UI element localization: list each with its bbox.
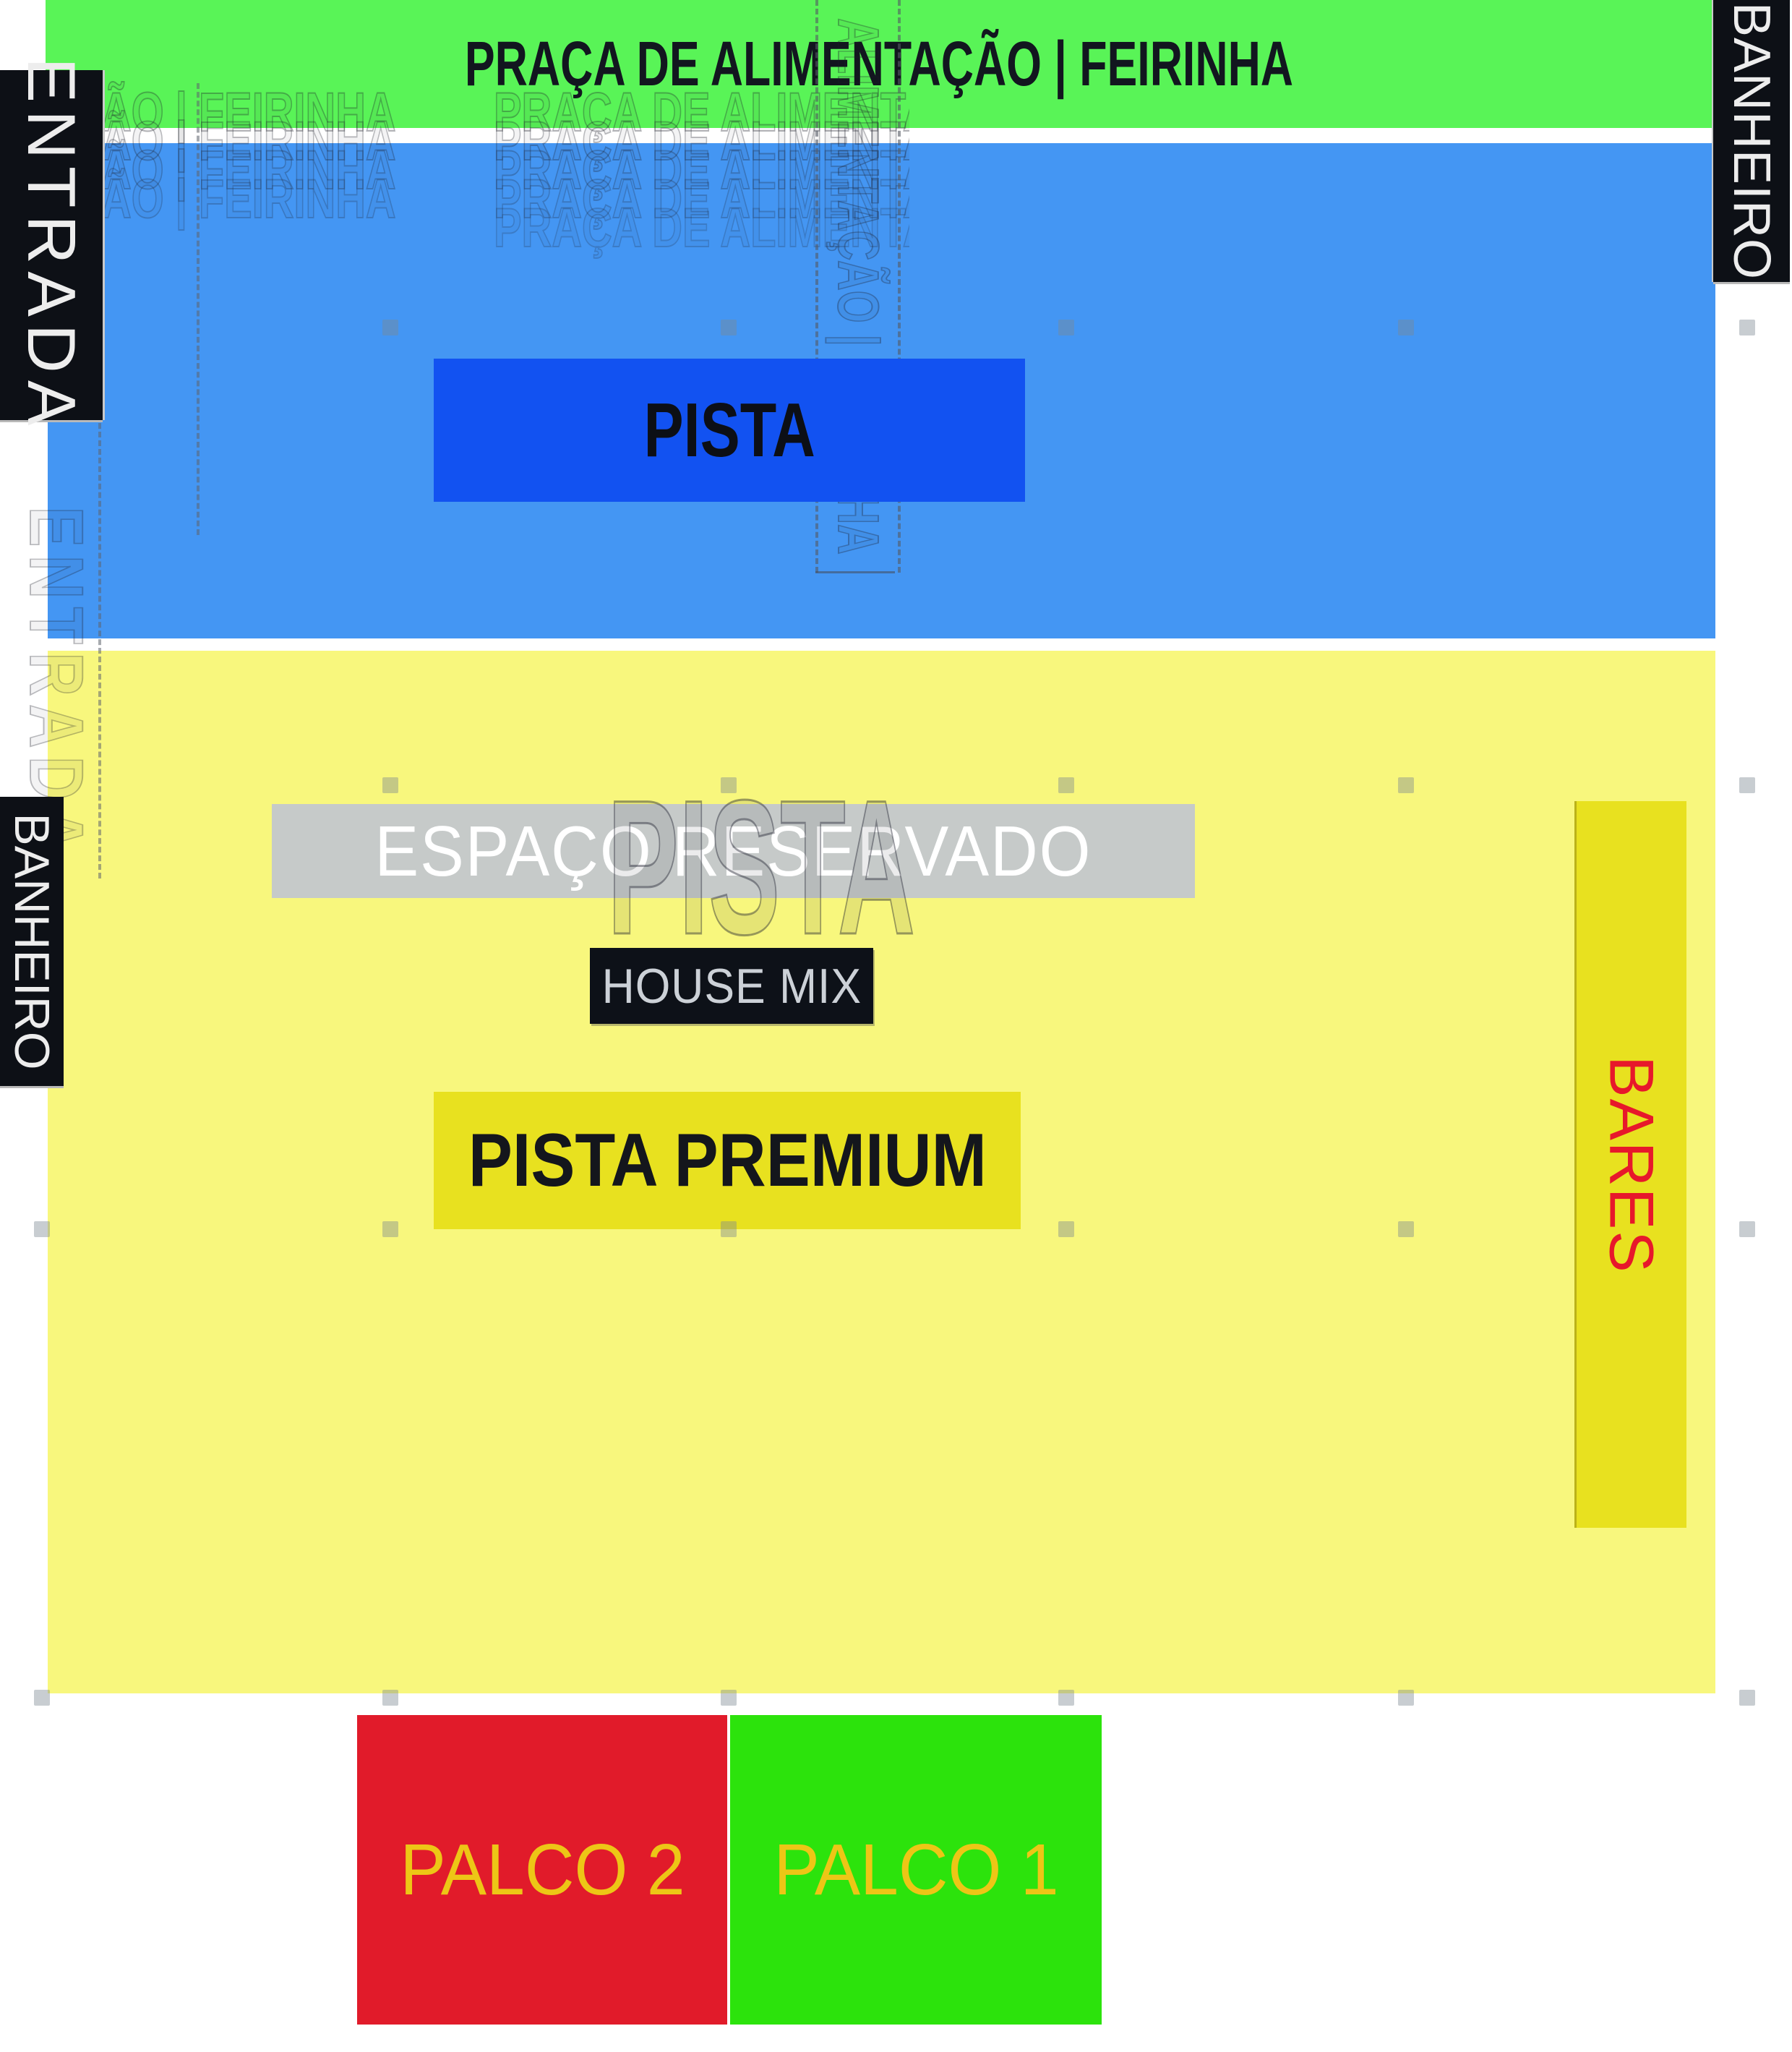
bares-label: BARES	[1595, 1056, 1666, 1274]
zone-house-mix: HOUSE MIX	[590, 948, 873, 1024]
ghost-pista-text: PISTA	[607, 777, 915, 959]
selection-handle	[1058, 1690, 1074, 1706]
selection-handle	[382, 777, 398, 793]
banheiro-top-right-label: BANHEIRO	[1722, 2, 1781, 280]
selection-handle	[721, 1690, 737, 1706]
selection-handle	[1058, 777, 1074, 793]
selection-handle	[721, 777, 737, 793]
entrada-label: ENTRADA	[12, 57, 90, 432]
selection-handle	[1398, 777, 1414, 793]
selection-handle	[1739, 320, 1755, 335]
zone-banheiro-left: BANHEIRO	[0, 797, 64, 1086]
selection-handle	[382, 1221, 398, 1237]
pista-premium-label: PISTA PREMIUM	[468, 1118, 987, 1204]
selection-handle	[1739, 777, 1755, 793]
zone-banheiro-top-right: BANHEIRO	[1713, 0, 1790, 282]
selection-handle	[721, 1221, 737, 1237]
selection-handle	[382, 1690, 398, 1706]
banheiro-left-label: BANHEIRO	[4, 813, 60, 1069]
selection-handle	[1739, 1221, 1755, 1237]
selection-handle	[1058, 1221, 1074, 1237]
zone-pista: PISTA	[434, 359, 1025, 502]
selection-handle	[34, 1221, 50, 1237]
selection-handle	[34, 1690, 50, 1706]
selection-handle	[1398, 320, 1414, 335]
house-mix-label: HOUSE MIX	[601, 958, 861, 1014]
zone-bares: BARES	[1574, 801, 1686, 1528]
zone-palco-1: PALCO 1	[730, 1715, 1102, 2025]
selection-handle	[1058, 320, 1074, 335]
zone-pista-premium: PISTA PREMIUM	[434, 1092, 1021, 1229]
palco-2-label: PALCO 2	[400, 1829, 685, 1912]
ghost-dashed-line	[197, 83, 200, 535]
selection-handle	[1398, 1221, 1414, 1237]
selection-handle	[1739, 1690, 1755, 1706]
pista-label: PISTA	[643, 387, 815, 474]
selection-handle	[382, 320, 398, 335]
selection-handle	[1398, 1690, 1414, 1706]
zone-palco-2: PALCO 2	[357, 1715, 727, 2025]
ghost-frame-end-line	[815, 571, 895, 573]
venue-map: PRAÇA DE ALIMENTAÇÃO | FEIRINHA ÃO | FEI…	[0, 0, 1792, 2052]
ghost-title-tail-copy: ÃO | FEIRINHA	[101, 168, 396, 231]
zone-entrada: ENTRADA	[0, 70, 103, 420]
palco-1-label: PALCO 1	[773, 1829, 1058, 1912]
selection-handle	[721, 320, 737, 335]
